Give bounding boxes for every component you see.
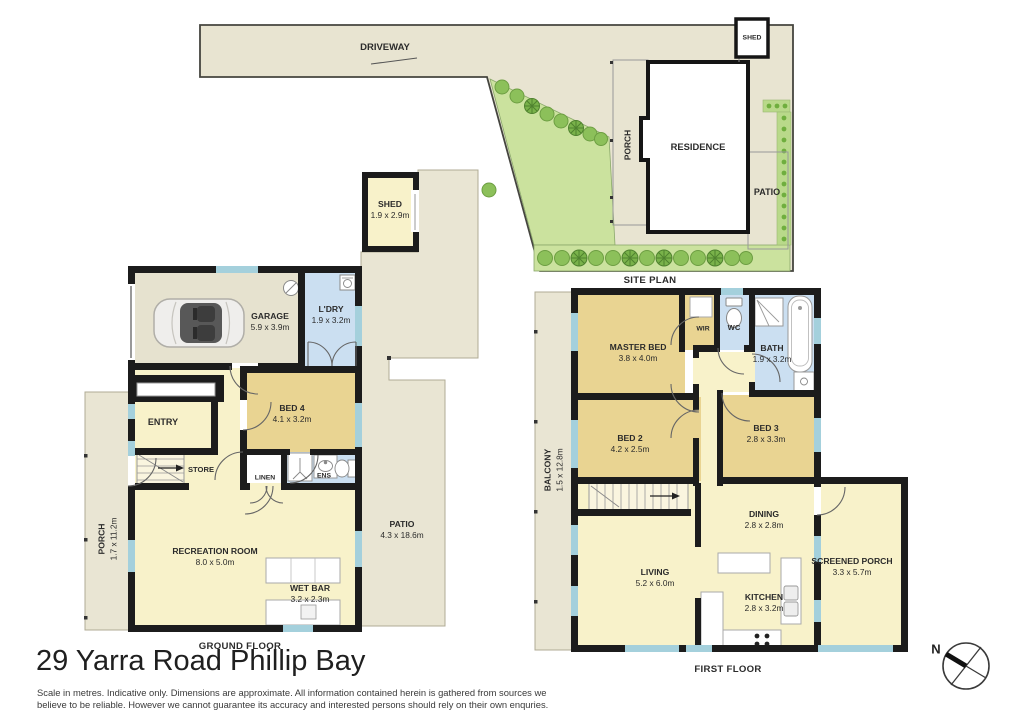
disclaimer: Scale in metres. Indicative only. Dimens… <box>37 687 548 710</box>
room-label-balcony: BALCONY1.5 x 12.8m <box>543 448 566 491</box>
room-label-dining: DINING2.8 x 2.8m <box>745 509 784 531</box>
site-shed-label: SHED <box>743 35 762 44</box>
site-porch-label: PORCH <box>622 130 633 160</box>
site-plan-caption: SITE PLAN <box>624 275 677 287</box>
washing-machine-icon <box>340 275 355 290</box>
hot-water-icon <box>284 281 299 296</box>
room-label-gf-patio: PATIO4.3 x 18.6m <box>380 519 423 541</box>
room-label-bed2: BED 24.2 x 2.5m <box>611 433 650 455</box>
floorplan-page: DRIVEWAY SHED PORCH RESIDENCE PATIO SITE… <box>0 0 1024 725</box>
north-label: N <box>931 642 940 657</box>
disclaimer-line1: Scale in metres. Indicative only. Dimens… <box>37 687 548 699</box>
room-label-bed3: BED 32.8 x 3.3m <box>747 423 786 445</box>
driveway-label: DRIVEWAY <box>360 42 410 54</box>
site-patio-label: PATIO <box>754 187 780 199</box>
wir-closet <box>690 297 712 317</box>
room-label-bed4: BED 44.1 x 3.2m <box>273 403 312 425</box>
room-label-recreation: RECREATION ROOM8.0 x 5.0m <box>172 546 257 568</box>
floorplan-graphics <box>0 0 1024 725</box>
room-label-wetbar: WET BAR3.2 x 2.3m <box>290 583 330 605</box>
bay-window <box>137 383 215 396</box>
room-label-garage: GARAGE5.9 x 3.9m <box>251 311 290 333</box>
room-label-laundry: L'DRY1.9 x 3.2m <box>312 304 351 326</box>
ground-floor-group <box>84 170 478 632</box>
room-label-linen: LINEN <box>255 475 275 484</box>
room-label-kitchen: KITCHEN2.8 x 3.2m <box>745 592 784 614</box>
gf-stairs-icon <box>137 452 184 484</box>
first-floor-group <box>534 288 908 652</box>
room-label-ens: ENS <box>317 473 331 482</box>
compass-icon <box>943 643 989 689</box>
room-label-wir: WIR <box>696 326 709 335</box>
ff-porch-door-gap <box>814 487 821 515</box>
disclaimer-line2: believe to be reliable. However we canno… <box>37 699 548 711</box>
page-title: 29 Yarra Road Phillip Bay <box>36 646 365 678</box>
ff-stairs-icon <box>589 483 688 510</box>
first-floor-caption: FIRST FLOOR <box>694 664 761 676</box>
room-label-entry: ENTRY <box>148 417 178 429</box>
residence-label: RESIDENCE <box>671 141 726 153</box>
room-label-gf-porch: PORCH1.7 x 11.2m <box>97 518 120 561</box>
room-label-bath: BATH1.9 x 3.2m <box>753 343 792 365</box>
room-label-master: MASTER BED3.8 x 4.0m <box>610 342 667 364</box>
room-label-screened-porch: SCREENED PORCH3.3 x 5.7m <box>811 556 892 578</box>
room-label-wc: WC <box>728 323 741 333</box>
room-label-gf-shed: SHED1.9 x 2.9m <box>371 199 410 221</box>
gf-porch-shape <box>85 392 131 630</box>
room-label-store: STORE <box>188 465 214 475</box>
room-label-living: LIVING5.2 x 6.0m <box>636 567 675 589</box>
car-icon <box>154 299 244 347</box>
